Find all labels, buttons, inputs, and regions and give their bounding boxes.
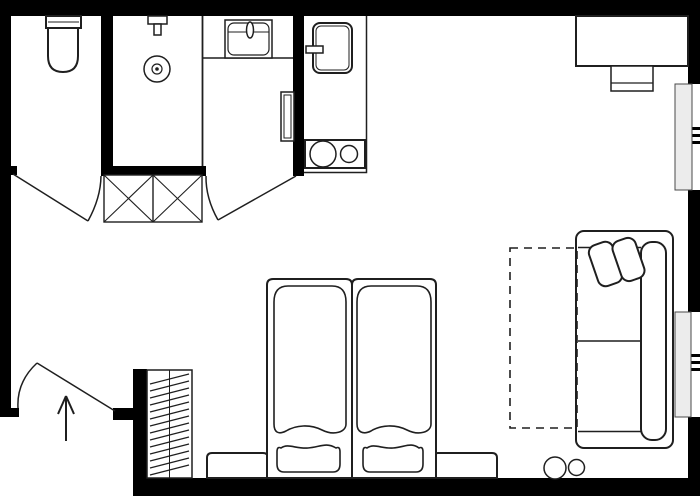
bed-mattress-left [274, 286, 346, 433]
wall-left [0, 0, 11, 417]
window-upper-right-panel [675, 84, 692, 190]
entry-door-arc [18, 363, 37, 408]
shower [144, 16, 203, 166]
window-tick [691, 354, 700, 357]
shower-head-bar [148, 16, 167, 24]
kitchenette [304, 16, 367, 173]
arrow-head-right [66, 396, 74, 414]
washbasin-faucet [247, 22, 254, 38]
bed-mattress-right [357, 286, 431, 433]
floor-plan [0, 0, 700, 500]
toilet-door-arc [88, 176, 101, 221]
shower-head-stem [154, 24, 161, 35]
wall-right-upper [688, 0, 700, 84]
toilet-door-leaf [13, 174, 88, 221]
wall-cabinet [281, 92, 294, 141]
round-stool-large [544, 457, 566, 479]
bed-pillow-left [277, 445, 340, 472]
window-lower-right-panel [675, 312, 691, 417]
desk-area [576, 16, 688, 91]
window-tick [691, 361, 700, 364]
bench-right [433, 453, 497, 478]
twin-beds [267, 279, 436, 478]
window-tick [691, 368, 700, 371]
hatched-luggage-rack [147, 370, 192, 478]
desk-chair [611, 66, 653, 91]
arrow-head-left [58, 396, 66, 414]
wall-left-entry-stub [11, 408, 19, 417]
wall-toilet-divider [101, 0, 113, 176]
round-stool-small [569, 460, 585, 476]
dashed-extension-area [510, 248, 577, 428]
bench-left [207, 453, 268, 478]
wall-toilet-door-stub [9, 166, 17, 175]
toilet-bowl [48, 28, 78, 72]
wall-cabinet-outer [281, 92, 294, 141]
floor-plan-drawing [0, 0, 700, 500]
entry-door-leaf [37, 363, 115, 411]
bathroom-door-leaf [218, 176, 296, 220]
bed-pillow-right [363, 445, 423, 472]
sofa [576, 231, 673, 448]
desk [576, 16, 688, 66]
wall-entry-door-stub [113, 408, 133, 420]
bathroom-door-arc [206, 176, 218, 220]
wall-kitchen [293, 0, 304, 176]
toilet [46, 16, 81, 72]
wall-entry [133, 369, 147, 478]
x-marked-closet [104, 175, 202, 222]
refrigerator-handle [306, 46, 323, 53]
wall-bottom [133, 478, 700, 496]
floor-drain-dot [155, 67, 159, 71]
entry-direction-arrow [58, 396, 74, 441]
washbasin [203, 20, 293, 58]
wall-right-middle [688, 190, 700, 312]
round-stools [544, 457, 585, 479]
